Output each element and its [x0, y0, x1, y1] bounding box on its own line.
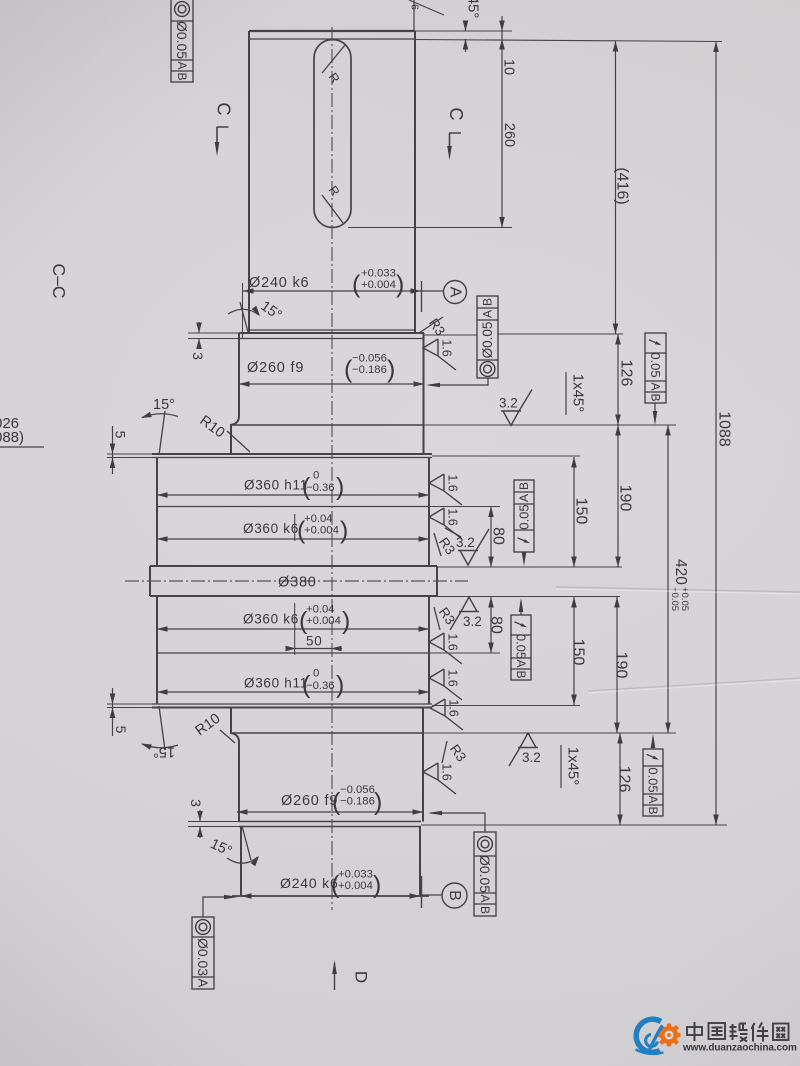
svg-text:R3: R3 — [447, 742, 469, 765]
svg-text:Ø0.05: Ø0.05 — [174, 21, 190, 59]
svg-text:A: A — [517, 494, 531, 502]
svg-text:1x45°: 1x45° — [565, 747, 582, 786]
svg-text:): ) — [336, 671, 344, 699]
svg-text:+0.004: +0.004 — [361, 279, 396, 291]
svg-text:3: 3 — [190, 352, 206, 360]
svg-text:+0.05: +0.05 — [679, 587, 690, 611]
svg-text:B: B — [517, 482, 531, 490]
svg-text:3: 3 — [188, 799, 204, 807]
svg-text:R: R — [326, 183, 343, 198]
svg-text:−0.05: −0.05 — [669, 587, 680, 611]
svg-text:0: 0 — [313, 668, 319, 680]
svg-text:0.05: 0.05 — [514, 634, 529, 659]
svg-text:(416): (416) — [614, 167, 631, 204]
svg-text:260: 260 — [501, 123, 517, 147]
svg-text:): ) — [374, 788, 382, 816]
svg-text:1088: 1088 — [716, 411, 733, 447]
svg-text:15°: 15° — [153, 397, 175, 413]
svg-text:C–C: C–C — [49, 263, 69, 298]
svg-text:B: B — [649, 393, 663, 401]
svg-text:(: ( — [302, 473, 311, 501]
svg-text:+0.004: +0.004 — [306, 615, 341, 627]
svg-text:B: B — [175, 72, 189, 80]
svg-text:80: 80 — [490, 527, 507, 545]
svg-text:R3: R3 — [436, 535, 458, 558]
svg-text:(: ( — [302, 671, 311, 699]
svg-text:088): 088) — [0, 429, 24, 446]
svg-text:5: 5 — [113, 726, 129, 734]
svg-text:C: C — [446, 108, 466, 121]
svg-text:): ) — [373, 871, 381, 899]
svg-text:A: A — [447, 287, 464, 298]
svg-text:A: A — [478, 894, 492, 902]
svg-text:Ø0.03: Ø0.03 — [195, 938, 211, 976]
svg-text:−0.186: −0.186 — [340, 796, 375, 808]
svg-text:1x45°: 1x45° — [570, 374, 587, 413]
svg-text:−0.36: −0.36 — [306, 680, 335, 692]
svg-text:+0.004: +0.004 — [304, 525, 339, 537]
svg-text:(: ( — [332, 788, 341, 816]
svg-text:026: 026 — [0, 415, 19, 432]
svg-text:A: A — [649, 382, 663, 390]
svg-text:Ø360 k6: Ø360 k6 — [243, 612, 299, 627]
svg-text:0.05: 0.05 — [648, 352, 663, 377]
svg-text:R3: R3 — [426, 316, 448, 339]
svg-text:Ø260 f9: Ø260 f9 — [281, 793, 338, 809]
svg-text:0: 0 — [313, 470, 319, 482]
svg-text:−0.186: −0.186 — [352, 364, 387, 376]
svg-text:Ø0.05: Ø0.05 — [477, 855, 493, 893]
svg-text:C: C — [214, 103, 234, 116]
svg-text:B: B — [478, 906, 492, 914]
svg-text:B: B — [514, 670, 528, 678]
svg-text:B: B — [446, 890, 463, 901]
svg-text:Ø380: Ø380 — [278, 575, 317, 591]
svg-text:www.duanzaochina.com: www.duanzaochina.com — [682, 1043, 797, 1054]
svg-text:15°: 15° — [257, 298, 284, 324]
svg-text:−0.36: −0.36 — [306, 482, 335, 494]
svg-text:D: D — [352, 971, 371, 983]
svg-text:(: ( — [344, 356, 353, 384]
svg-text:190: 190 — [617, 485, 634, 512]
svg-text:150: 150 — [570, 639, 587, 666]
svg-text:B: B — [481, 298, 495, 306]
svg-text:+0.04: +0.04 — [304, 513, 333, 525]
svg-text:126: 126 — [616, 766, 633, 793]
svg-text:(: ( — [297, 517, 306, 545]
svg-text:6: 6 — [409, 4, 420, 10]
svg-text:+0.033: +0.033 — [361, 268, 396, 280]
svg-text:Ø360 h11: Ø360 h11 — [244, 676, 308, 691]
svg-text:+0.04: +0.04 — [306, 604, 335, 616]
svg-text:A: A — [481, 310, 495, 318]
svg-text:(: ( — [331, 871, 340, 899]
svg-text:A: A — [646, 795, 660, 803]
svg-text:Ø260 f9: Ø260 f9 — [247, 360, 304, 376]
svg-text:+0.004: +0.004 — [338, 880, 373, 892]
svg-text:B: B — [646, 806, 660, 814]
svg-text:R10: R10 — [193, 711, 224, 740]
svg-text:): ) — [396, 271, 404, 299]
svg-text:Ø0.05: Ø0.05 — [480, 322, 495, 359]
svg-text:A: A — [196, 979, 211, 988]
svg-text:45°: 45° — [465, 0, 482, 18]
svg-text:10: 10 — [501, 59, 517, 75]
svg-text:15°: 15° — [208, 836, 235, 860]
svg-text:Ø240 k6: Ø240 k6 — [249, 275, 309, 291]
svg-text:): ) — [336, 473, 344, 501]
svg-text:(: ( — [299, 607, 308, 635]
svg-text:A: A — [175, 61, 189, 69]
svg-text:R10: R10 — [197, 413, 228, 442]
svg-text:R: R — [326, 70, 343, 85]
svg-text:15°: 15° — [153, 744, 175, 760]
svg-text:−0.056: −0.056 — [352, 353, 387, 365]
svg-text:): ) — [342, 607, 350, 635]
svg-text:80: 80 — [488, 616, 505, 634]
svg-text:Ø360 k6: Ø360 k6 — [243, 521, 299, 536]
svg-text:−0.056: −0.056 — [340, 784, 375, 796]
svg-text:): ) — [340, 517, 348, 545]
svg-text:): ) — [387, 356, 395, 384]
svg-text:A: A — [514, 659, 528, 667]
svg-text:R3: R3 — [436, 605, 458, 628]
svg-text:(: ( — [352, 271, 361, 299]
svg-text:190: 190 — [613, 652, 630, 679]
svg-text:420: 420 — [672, 559, 689, 585]
svg-text:50: 50 — [306, 634, 322, 649]
svg-text:+0.033: +0.033 — [338, 869, 373, 881]
svg-text:126: 126 — [618, 360, 635, 387]
svg-text:0.05: 0.05 — [517, 504, 532, 529]
svg-text:5: 5 — [113, 431, 129, 439]
svg-text:150: 150 — [573, 498, 590, 525]
svg-text:Ø360 h11: Ø360 h11 — [244, 478, 308, 493]
svg-text:Ø240 k6: Ø240 k6 — [280, 875, 339, 891]
svg-text:0.05: 0.05 — [646, 767, 661, 792]
